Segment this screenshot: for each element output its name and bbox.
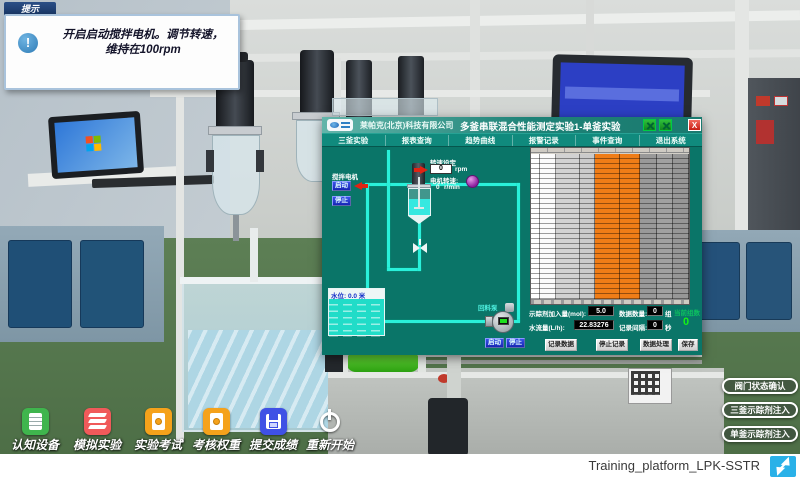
valve-status-confirm-button[interactable]: 阀门状态确认 xyxy=(722,378,798,394)
agitator-label: 搅拌电机 xyxy=(332,171,358,181)
dock-item-assessment-weight[interactable]: 考核权重 xyxy=(185,408,247,453)
diagram-vessel-cone xyxy=(408,216,430,224)
pipe-left-vert-1 xyxy=(366,183,369,289)
stop-record-button[interactable]: 停止记录 xyxy=(596,339,628,351)
count-label: 数据数量: xyxy=(619,308,647,318)
motor-speed-value: 0 xyxy=(436,184,440,191)
layers-icon xyxy=(84,408,111,435)
save-button[interactable]: 保存 xyxy=(678,339,698,351)
pipe-right-vert xyxy=(517,183,520,322)
scene-green-cylinder xyxy=(346,352,420,372)
minimize-button[interactable] xyxy=(643,119,656,131)
scene-glass-tank-rim xyxy=(180,277,338,284)
interval-label: 记录间隔: xyxy=(619,322,647,332)
windows-logo-icon xyxy=(85,135,101,151)
pump-start-button[interactable]: 启动 xyxy=(485,338,504,348)
exam-file-icon xyxy=(145,408,172,435)
power-icon xyxy=(317,408,344,435)
pump-stop-button[interactable]: 停止 xyxy=(506,338,525,348)
hint-box: ! 开启启动搅拌电机。调节转速， 维持在100rpm xyxy=(4,14,240,90)
motor-speed-unit: r/min xyxy=(444,184,460,191)
current-group-value: 0 xyxy=(683,316,689,328)
menu-trend-curve[interactable]: 趋势曲线 xyxy=(449,135,513,146)
reactor-clamp-1a xyxy=(206,150,214,172)
dock-item-submit-grades[interactable]: 提交成绩 xyxy=(242,408,304,453)
sheet-column xyxy=(531,154,540,301)
data-process-button[interactable]: 数据处理 xyxy=(640,339,672,351)
scene-left-cabinet-door-1 xyxy=(8,240,72,328)
reactor-clamp-1b xyxy=(256,150,264,172)
hint-line-2: 维持在100rpm xyxy=(50,43,236,58)
drain-valve-right[interactable] xyxy=(420,243,427,253)
purple-indicator-knob[interactable] xyxy=(466,175,479,188)
sheet-column xyxy=(657,154,673,301)
hint-arrow-speed-input xyxy=(420,166,428,174)
tracer-label: 示踪剂加入量(mol): xyxy=(529,308,586,318)
record-data-button[interactable]: 记录数据 xyxy=(545,339,577,351)
scene-red-sign-1 xyxy=(756,96,770,106)
sheet-column xyxy=(620,154,640,301)
scene-post xyxy=(447,354,461,398)
sheet-column xyxy=(640,154,657,301)
interval-value: 0 xyxy=(647,320,663,330)
menu-exit-system[interactable]: 退出系统 xyxy=(640,135,703,146)
reactor-vessel-1 xyxy=(212,135,260,215)
scada-titlebar: 莱帕克(北京)科技有限公司 多釜串联混合性能测定实验1-单釜实验 X xyxy=(322,117,702,133)
weight-file-icon xyxy=(203,408,230,435)
drain-valve[interactable] xyxy=(413,243,420,253)
count-unit: 组 xyxy=(665,308,672,318)
single-kettle-tracer-button[interactable]: 单釜示踪剂注入 xyxy=(722,426,798,442)
menu-three-kettle[interactable]: 三釜实验 xyxy=(322,135,386,146)
hint-text: 开启启动搅拌电机。调节转速， 维持在100rpm xyxy=(50,28,236,58)
agitator-start-button[interactable]: 启动 xyxy=(332,181,351,191)
dock-item-experiment-exam[interactable]: 实验考试 xyxy=(127,408,189,453)
footer-bar: Training_platform_LPK-SSTR xyxy=(0,454,800,479)
data-table-tabs xyxy=(531,299,689,304)
scene-manifold-glass xyxy=(332,98,438,116)
sheet-column xyxy=(540,154,556,301)
dock-item-simulate-experiment[interactable]: 模拟实验 xyxy=(66,408,128,453)
stirrer-blade xyxy=(414,207,424,209)
company-logo-icon xyxy=(327,119,353,131)
pipe-left-vert-2 xyxy=(387,150,390,271)
diagram-water-tank: 水位: 0.0 米 xyxy=(328,288,385,336)
dock-item-restart[interactable]: 重新开始 xyxy=(299,408,361,453)
count-value: 0 xyxy=(647,306,663,316)
scene-qr-sticker xyxy=(628,368,672,404)
scene-right-cabinet-door-2 xyxy=(746,242,792,320)
menu-report-query[interactable]: 报表查询 xyxy=(386,135,450,146)
tracer-value: 5.0 xyxy=(588,306,614,316)
sheet-column xyxy=(673,154,689,301)
scene-red-sign-2 xyxy=(774,96,788,106)
scene-pillar-1 xyxy=(470,0,480,120)
pump-label: 回料泵 xyxy=(478,302,498,312)
close-button[interactable]: X xyxy=(688,119,701,131)
hint-line-1: 开启启动搅拌电机。调节转速， xyxy=(50,28,236,43)
scene-cylinder-cap-r xyxy=(418,352,426,372)
scene-right-pillar xyxy=(735,0,749,245)
scada-window: 莱帕克(北京)科技有限公司 多釜串联混合性能测定实验1-单釜实验 X 三釜实验 … xyxy=(322,117,702,355)
sheet-column xyxy=(595,154,620,301)
document-icon xyxy=(22,408,49,435)
speed-setpoint-input[interactable]: 0 xyxy=(430,164,452,174)
speed-set-unit: rpm xyxy=(455,166,467,173)
company-name: 莱帕克(北京)科技有限公司 xyxy=(360,120,453,131)
info-icon: ! xyxy=(18,33,38,53)
maximize-button[interactable] xyxy=(659,119,672,131)
reactor-stem-1 xyxy=(233,215,239,241)
diagram-vessel xyxy=(408,188,431,216)
pump-status-indicator xyxy=(498,317,509,325)
flow-label: 水流量(L/h): xyxy=(529,322,565,332)
dock-item-know-equipment[interactable]: 认知设备 xyxy=(4,408,66,453)
data-table-header xyxy=(531,148,689,153)
scene-red-box xyxy=(756,120,774,144)
stirrer-shaft xyxy=(418,177,420,209)
reactor-motor-2 xyxy=(300,50,334,114)
menu-event-query[interactable]: 事件查询 xyxy=(576,135,640,146)
scene-left-cabinet-door-2 xyxy=(80,240,144,328)
water-tank-waves xyxy=(329,299,384,337)
agitator-stop-button[interactable]: 停止 xyxy=(332,196,351,206)
three-kettle-tracer-button[interactable]: 三釜示踪剂注入 xyxy=(722,402,798,418)
sheet-column xyxy=(580,154,595,301)
scene-tank-inlet-pipe xyxy=(250,228,258,282)
reactor-flange-1 xyxy=(208,126,262,135)
interval-unit: 秒 xyxy=(665,322,672,332)
platform-name-label: Training_platform_LPK-SSTR xyxy=(589,458,760,473)
menu-alarm-log[interactable]: 报警记录 xyxy=(513,135,577,146)
pipe-bottom-h1 xyxy=(387,268,421,271)
window-title: 多釜串联混合性能测定实验1-单釜实验 xyxy=(460,119,620,133)
scene-dark-flask xyxy=(428,398,468,456)
floppy-icon xyxy=(260,408,287,435)
sheet-columns xyxy=(531,154,689,301)
expand-arrows-icon xyxy=(770,456,796,477)
fullscreen-toggle-button[interactable] xyxy=(770,456,796,477)
screenshot-root: 提示 ! 开启启动搅拌电机。调节转速， 维持在100rpm 莱帕克(北京)科技有… xyxy=(0,0,800,479)
hint-arrow-start-button xyxy=(354,182,362,190)
data-table[interactable] xyxy=(530,147,690,305)
sheet-column xyxy=(556,154,580,301)
flow-value: 22.83276 xyxy=(574,320,614,330)
scada-menubar: 三釜实验 报表查询 趋势曲线 报警记录 事件查询 退出系统 xyxy=(322,133,702,147)
